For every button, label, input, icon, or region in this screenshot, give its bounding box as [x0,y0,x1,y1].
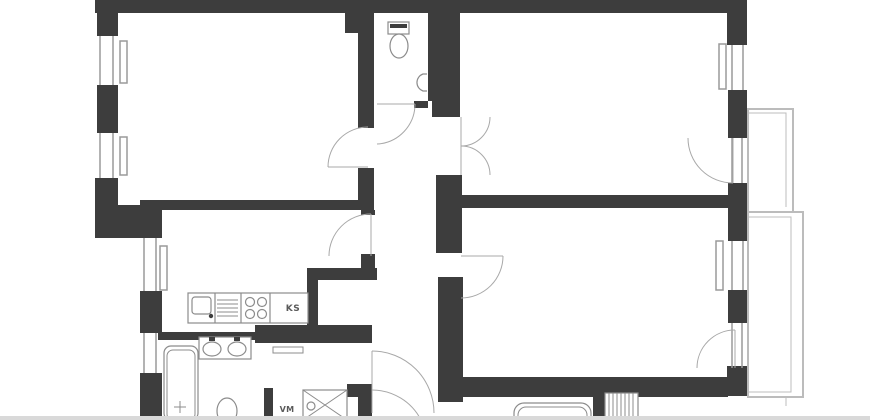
window-bar [120,41,127,83]
washing-machine-icon [303,390,347,420]
radiator-icon [605,393,638,420]
washbasin-unit [199,337,251,359]
radiator-fins [609,393,633,420]
bottom-crop-strip [0,416,870,420]
toilet-bowl-icon [390,34,408,58]
floor-plan: KS VM [0,0,870,420]
sink-faucet-dot [209,314,213,318]
washbasin-tap [234,337,240,341]
washing-machine-label: VM [280,405,295,414]
window-bar [160,246,167,290]
wall-shelf [273,347,303,353]
window-bar [120,137,127,175]
hand-basin-icon [417,74,427,91]
floor-plan-image: KS VM [0,0,870,420]
toilet-cistern-lid [390,24,407,28]
bathtub-icon [164,346,198,420]
window-bar [719,44,726,89]
fridge-label: KS [286,304,300,314]
washbasin-tap [209,337,215,341]
window-bar [716,241,723,290]
